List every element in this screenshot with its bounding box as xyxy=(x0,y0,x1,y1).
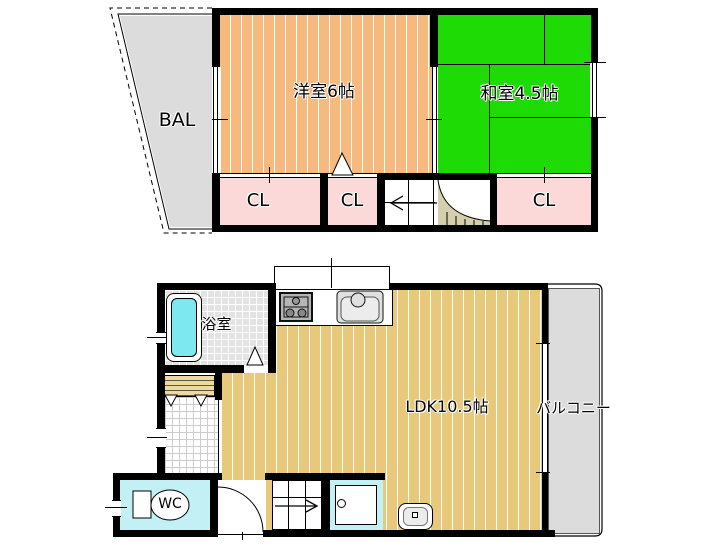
winder-steps xyxy=(438,180,490,225)
closet-label-3: CL xyxy=(524,191,564,211)
door-triangle-icon xyxy=(332,153,353,175)
western-room-label: 洋室6帖 xyxy=(274,83,374,102)
ldk-label: LDK10.5帖 xyxy=(397,398,497,416)
door-triangle-icon xyxy=(247,347,263,365)
wc-label: WC xyxy=(152,497,188,512)
v-mark xyxy=(195,395,207,406)
stairs-arrow-icon xyxy=(275,500,317,512)
bal-label: BAL xyxy=(147,110,207,131)
gas-stove-icon xyxy=(280,293,312,321)
balcony-label: バルコニー xyxy=(526,400,621,417)
v-mark xyxy=(165,395,177,406)
closet-label-1: CL xyxy=(238,191,278,211)
kitchen-sink-icon xyxy=(337,291,383,323)
floorplan-canvas: BAL 洋室6帖 和室4.5帖 CL CL CL 浴室 LDK10.5帖 バルコ… xyxy=(0,0,710,550)
japanese-room-label: 和室4.5帖 xyxy=(457,85,582,104)
stairs-arrow-icon xyxy=(391,196,437,210)
door-swing-arc-icon xyxy=(218,487,263,532)
bathroom-label: 浴室 xyxy=(194,316,239,333)
closet-label-2: CL xyxy=(332,191,372,211)
